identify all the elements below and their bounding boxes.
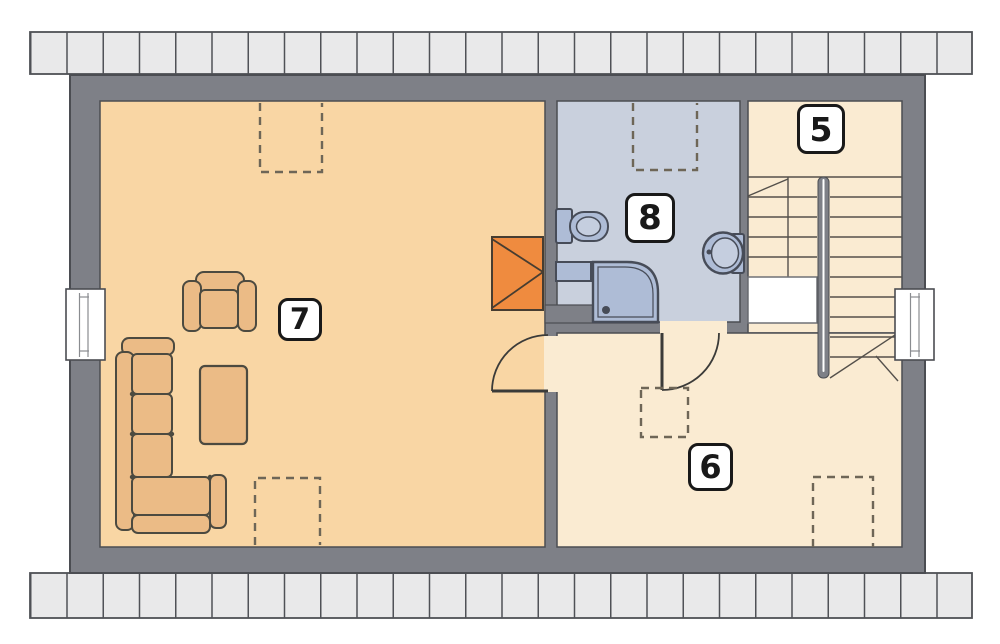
stair-landing-void [748,277,817,323]
window-right [895,289,934,360]
room-label-bathroom: 8 [625,193,675,243]
washer [556,262,591,281]
floor-plan-drawing [0,0,1000,644]
roof-eave-strip-bottom [30,573,972,618]
floor-plan: 7 8 5 6 [0,0,1000,644]
armchair [183,272,256,331]
door-opening-6-8 [660,321,727,334]
chimney [492,237,543,310]
shower [593,262,658,322]
door-opening-7-6 [544,336,558,392]
toilet [556,209,608,243]
room-label-living: 7 [278,298,322,341]
stair-railing [818,177,829,378]
room-label-staircase: 5 [797,104,845,154]
roof-eave-strip-top [30,32,972,74]
sink [703,233,744,274]
coffee-table [200,366,247,444]
window-left [66,289,105,360]
room-label-hall: 6 [688,443,733,491]
